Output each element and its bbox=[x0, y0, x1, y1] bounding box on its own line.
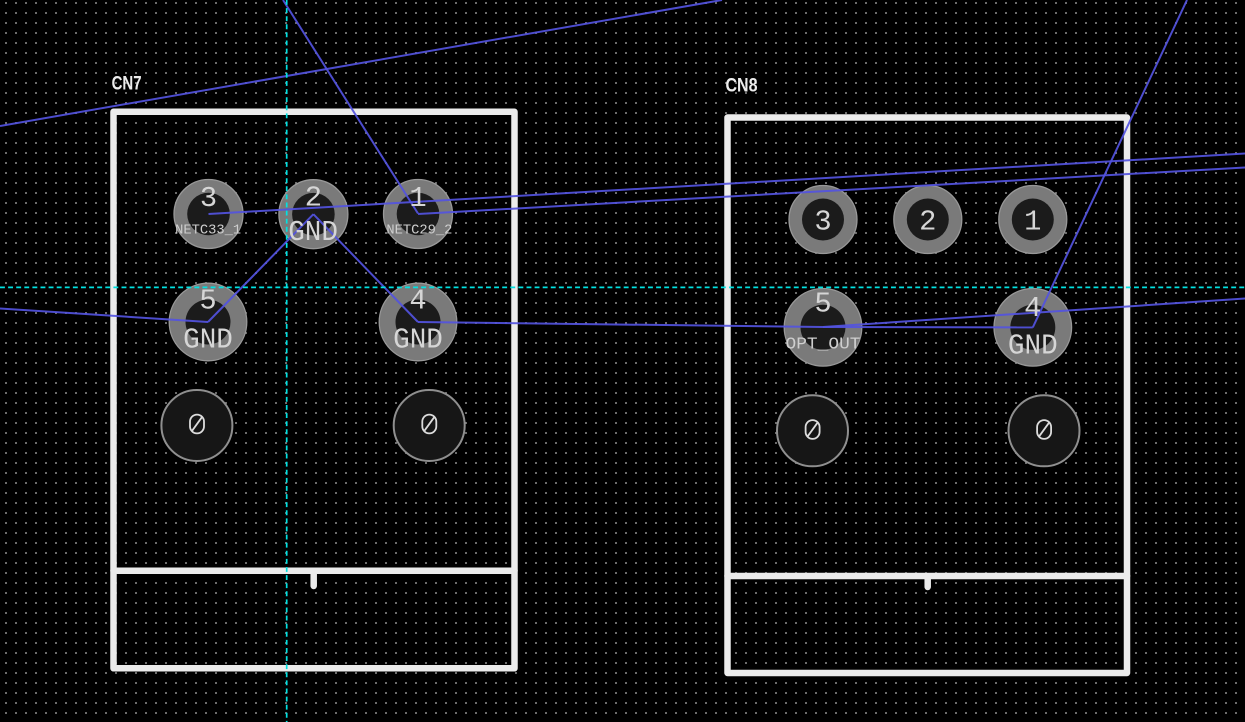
svg-text:GND: GND bbox=[288, 216, 338, 249]
svg-text:5: 5 bbox=[199, 285, 216, 318]
svg-text:1: 1 bbox=[409, 182, 426, 215]
svg-text:4: 4 bbox=[409, 285, 426, 318]
svg-text:1: 1 bbox=[1024, 205, 1041, 238]
svg-text:3: 3 bbox=[814, 205, 831, 238]
svg-text:2: 2 bbox=[305, 182, 322, 215]
svg-text:2: 2 bbox=[919, 205, 936, 238]
svg-text:3: 3 bbox=[200, 182, 217, 215]
svg-text:4: 4 bbox=[1024, 292, 1041, 325]
svg-text:CN7: CN7 bbox=[112, 74, 142, 95]
svg-text:GND: GND bbox=[183, 323, 233, 356]
svg-text:GND: GND bbox=[1008, 330, 1058, 363]
svg-text:OPT_OUT: OPT_OUT bbox=[786, 336, 861, 355]
svg-text:NETC29_2: NETC29_2 bbox=[386, 224, 452, 239]
svg-text:5: 5 bbox=[814, 288, 831, 321]
svg-text:CN8: CN8 bbox=[726, 76, 758, 97]
svg-text:NETC33_1: NETC33_1 bbox=[175, 224, 241, 239]
svg-text:GND: GND bbox=[393, 323, 443, 356]
